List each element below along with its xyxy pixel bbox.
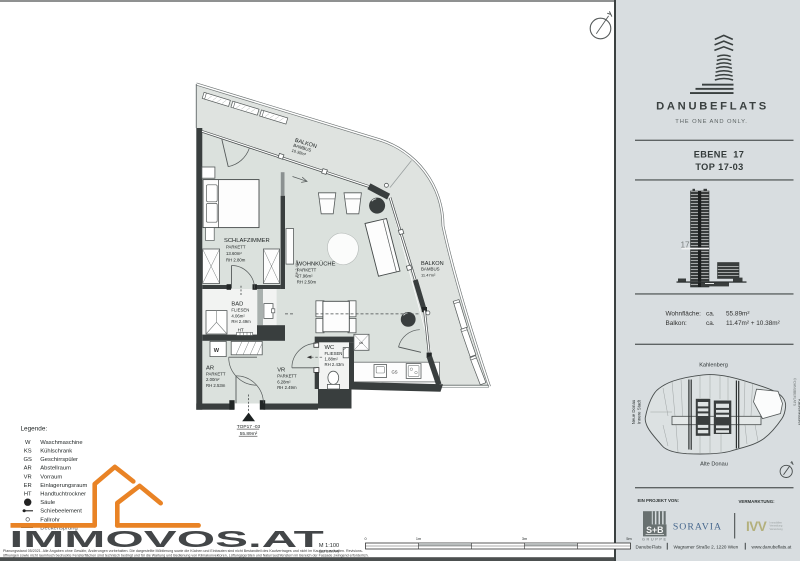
svg-text:0: 0 — [364, 537, 366, 541]
svg-text:HT: HT — [238, 327, 244, 332]
svg-text:1m: 1m — [416, 537, 421, 541]
svg-text:FLIESEN: FLIESEN — [231, 308, 249, 313]
svg-text:www.danubeflats.at: www.danubeflats.at — [752, 545, 793, 550]
svg-text:KS: KS — [24, 449, 32, 455]
svg-text:Balkon:: Balkon: — [666, 320, 688, 327]
svg-text:Säule: Säule — [40, 500, 55, 506]
svg-text:© DANUBEFLATS: © DANUBEFLATS — [793, 378, 797, 407]
svg-text:SCHLAFZIMMER: SCHLAFZIMMER — [224, 238, 270, 244]
svg-text:RH 2.53m: RH 2.53m — [206, 383, 226, 388]
svg-text:Schiebeelement: Schiebeelement — [40, 509, 82, 515]
svg-text:Legende:: Legende: — [21, 426, 48, 433]
svg-text:Alte Donau: Alte Donau — [700, 461, 728, 467]
svg-text:ca.: ca. — [706, 320, 715, 327]
svg-text:öffnungen sowie nicht raumhoch: öffnungen sowie nicht raumhoch bedruckte… — [3, 553, 369, 557]
svg-text:Verwertung: Verwertung — [770, 527, 784, 531]
svg-text:11.47m²: 11.47m² — [421, 273, 436, 278]
svg-text:Handtuchtrockner: Handtuchtrockner — [40, 492, 86, 498]
svg-text:S+B: S+B — [646, 525, 663, 535]
svg-text:PARKETT: PARKETT — [206, 371, 226, 376]
svg-text:HT: HT — [24, 492, 32, 498]
svg-text:TOP 17-03: TOP 17-03 — [695, 162, 743, 172]
svg-text:THE ONE AND ONLY.: THE ONE AND ONLY. — [675, 119, 747, 125]
svg-text:PARKETT: PARKETT — [226, 245, 246, 250]
svg-text:Vorraum: Vorraum — [40, 474, 62, 480]
svg-text:DANUBEFLATS: DANUBEFLATS — [656, 101, 769, 113]
svg-text:GRUPPE: GRUPPE — [642, 537, 668, 541]
svg-text:Kühlschrank: Kühlschrank — [40, 449, 72, 455]
svg-text:KB: KB — [359, 341, 363, 345]
svg-text:RH 2.49m: RH 2.49m — [277, 385, 297, 390]
svg-text:Neue Donau: Neue Donau — [631, 399, 636, 424]
svg-text:2.00m²: 2.00m² — [206, 377, 220, 382]
svg-text:WOHNKÜCHE: WOHNKÜCHE — [297, 260, 336, 267]
svg-text:Planungsstand 05/2021. Alle An: Planungsstand 05/2021. Alle Angaben ohne… — [3, 549, 364, 553]
svg-text:4.06m²: 4.06m² — [231, 313, 245, 318]
svg-text:RH 2.50m: RH 2.50m — [297, 280, 317, 285]
svg-text:BAMBUS: BAMBUS — [421, 267, 440, 272]
svg-text:DanubeFlats: DanubeFlats — [636, 545, 663, 550]
svg-text:Abstellraum: Abstellraum — [40, 466, 71, 472]
svg-text:Einlagerungsraum: Einlagerungsraum — [40, 483, 87, 489]
svg-text:5m: 5m — [626, 537, 631, 541]
svg-text:1.88m²: 1.88m² — [325, 357, 339, 362]
svg-text:AR: AR — [24, 466, 32, 472]
svg-text:Wohnfläche:: Wohnfläche: — [666, 311, 702, 318]
svg-text:Waschmaschine: Waschmaschine — [40, 440, 82, 446]
svg-text:VR: VR — [24, 474, 32, 480]
svg-text:GS: GS — [24, 457, 33, 463]
svg-text:PARKETT: PARKETT — [297, 268, 317, 273]
svg-text:Fallrohr: Fallrohr — [40, 517, 60, 523]
svg-text:FLIESEN: FLIESEN — [325, 351, 343, 356]
svg-text:Wagramer Straße 2, 1220 Wien: Wagramer Straße 2, 1220 Wien — [674, 545, 739, 550]
svg-text:Innere Stadt: Innere Stadt — [636, 399, 641, 424]
svg-text:RH 2.80m: RH 2.80m — [226, 257, 246, 262]
svg-text:6.28m²: 6.28m² — [277, 379, 291, 384]
svg-text:Geschirrspüler: Geschirrspüler — [40, 457, 78, 463]
svg-text:ER: ER — [24, 483, 32, 489]
svg-text:27.96m²: 27.96m² — [297, 274, 313, 279]
svg-text:13.60m²: 13.60m² — [226, 251, 242, 256]
svg-text:IVV: IVV — [746, 519, 767, 534]
svg-text:W: W — [25, 440, 31, 446]
svg-text:GS: GS — [392, 370, 398, 375]
svg-text:11.47m² + 10.38m²: 11.47m² + 10.38m² — [726, 320, 780, 327]
svg-text:PARKETT: PARKETT — [277, 374, 297, 379]
svg-text:SORAVIA: SORAVIA — [673, 522, 722, 533]
svg-text:VERMARKTUNG:: VERMARKTUNG: — [739, 499, 776, 504]
svg-text:ca.: ca. — [706, 311, 715, 318]
svg-text:RH 2.49m: RH 2.49m — [231, 319, 251, 324]
svg-text:EIN PROJEKT VON:: EIN PROJEKT VON: — [638, 498, 680, 503]
svg-text:55.89m²: 55.89m² — [726, 311, 749, 318]
svg-text:3m: 3m — [522, 537, 527, 541]
svg-text:RH 2.43m: RH 2.43m — [325, 362, 345, 367]
svg-text:Kahlenberg: Kahlenberg — [699, 363, 728, 369]
svg-text:W: W — [214, 348, 220, 354]
svg-text:EBENE 17: EBENE 17 — [694, 150, 745, 160]
